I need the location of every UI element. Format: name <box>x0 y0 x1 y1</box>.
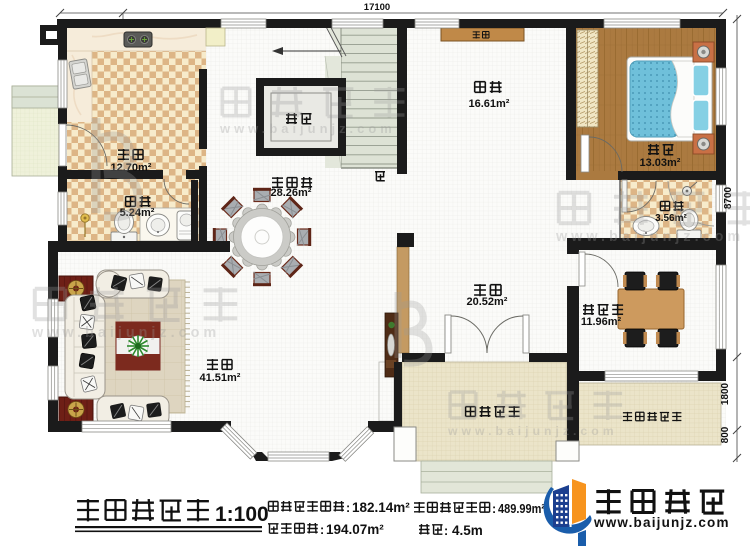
svg-text:www.baijunjz.com: www.baijunjz.com <box>447 424 618 438</box>
svg-text:182.14m²: 182.14m² <box>352 500 410 515</box>
svg-text:www.baijunjz.com: www.baijunjz.com <box>31 325 220 341</box>
svg-text:489.99m²: 489.99m² <box>498 501 546 516</box>
svg-text:194.07m²: 194.07m² <box>326 522 384 537</box>
svg-text::: : <box>320 523 324 537</box>
svg-text:16.61m²: 16.61m² <box>469 98 510 110</box>
svg-text:1:100: 1:100 <box>215 503 269 526</box>
svg-text:28.26m²: 28.26m² <box>271 187 312 199</box>
svg-text:www.baijunjz.com: www.baijunjz.com <box>219 121 396 136</box>
svg-text:20.52m²: 20.52m² <box>467 296 508 308</box>
svg-text:13.03m²: 13.03m² <box>640 157 681 169</box>
svg-text:41.51m²: 41.51m² <box>200 372 241 384</box>
svg-text:800: 800 <box>720 426 731 443</box>
svg-text:11.96m²: 11.96m² <box>581 316 622 328</box>
svg-text::: : <box>444 524 448 538</box>
svg-text::: : <box>346 501 350 515</box>
svg-text:8700: 8700 <box>723 186 734 209</box>
svg-text:1800: 1800 <box>720 382 731 405</box>
svg-text:4.5m: 4.5m <box>452 523 483 538</box>
svg-text:17100: 17100 <box>364 2 390 13</box>
svg-text:www.baijunjz.com: www.baijunjz.com <box>555 229 744 245</box>
svg-text::: : <box>492 502 496 516</box>
svg-text:www.baijunjz.com: www.baijunjz.com <box>593 515 730 530</box>
